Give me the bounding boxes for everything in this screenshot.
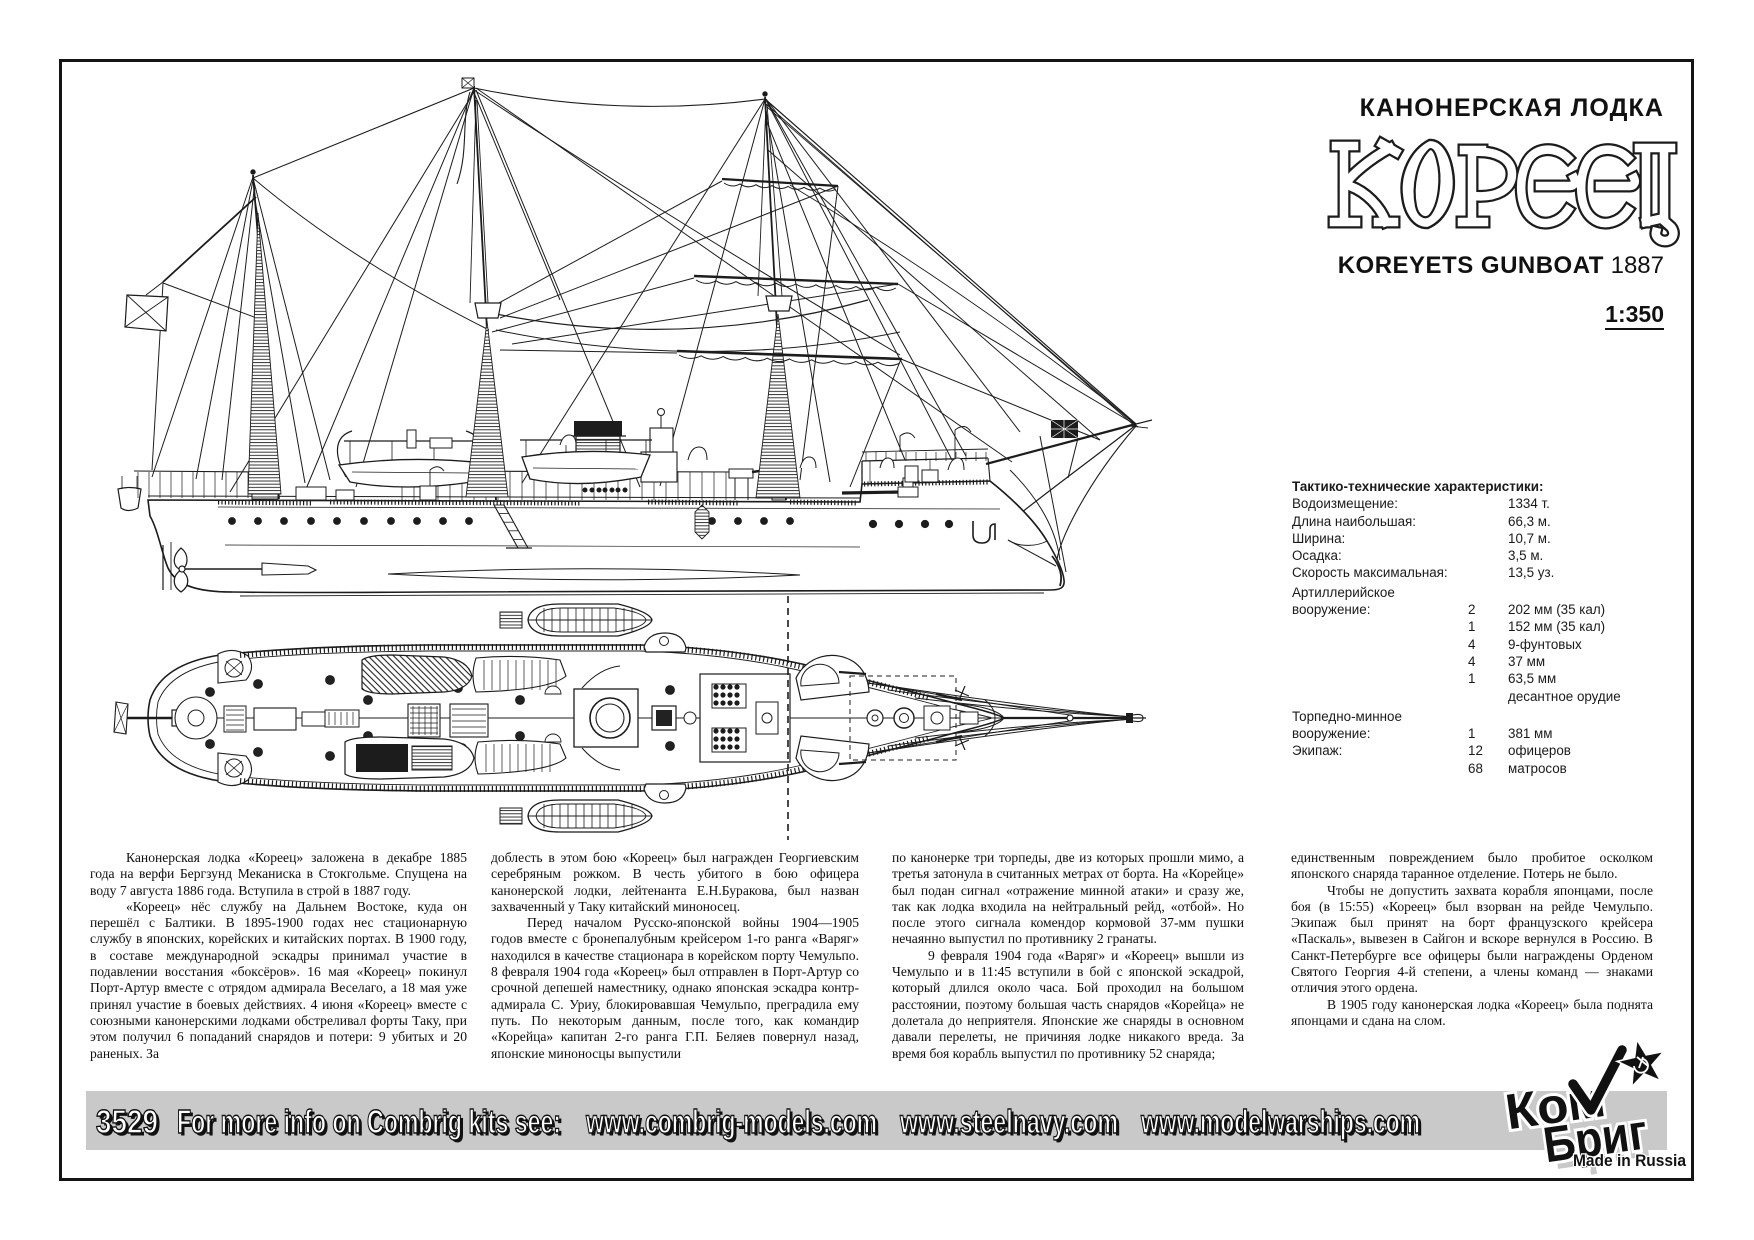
svg-text:www.steelnavy.com: www.steelnavy.com <box>899 1103 1118 1140</box>
svg-text:www.modelwarships.com: www.modelwarships.com <box>1140 1103 1420 1140</box>
svg-text:www.combrig-models.com: www.combrig-models.com <box>585 1103 877 1140</box>
svg-text:For more info on Combrig kits: For more info on Combrig kits see: <box>177 1103 561 1140</box>
svg-text:3529: 3529 <box>96 1103 158 1140</box>
svg-text:Made in Russia: Made in Russia <box>1573 1151 1686 1170</box>
